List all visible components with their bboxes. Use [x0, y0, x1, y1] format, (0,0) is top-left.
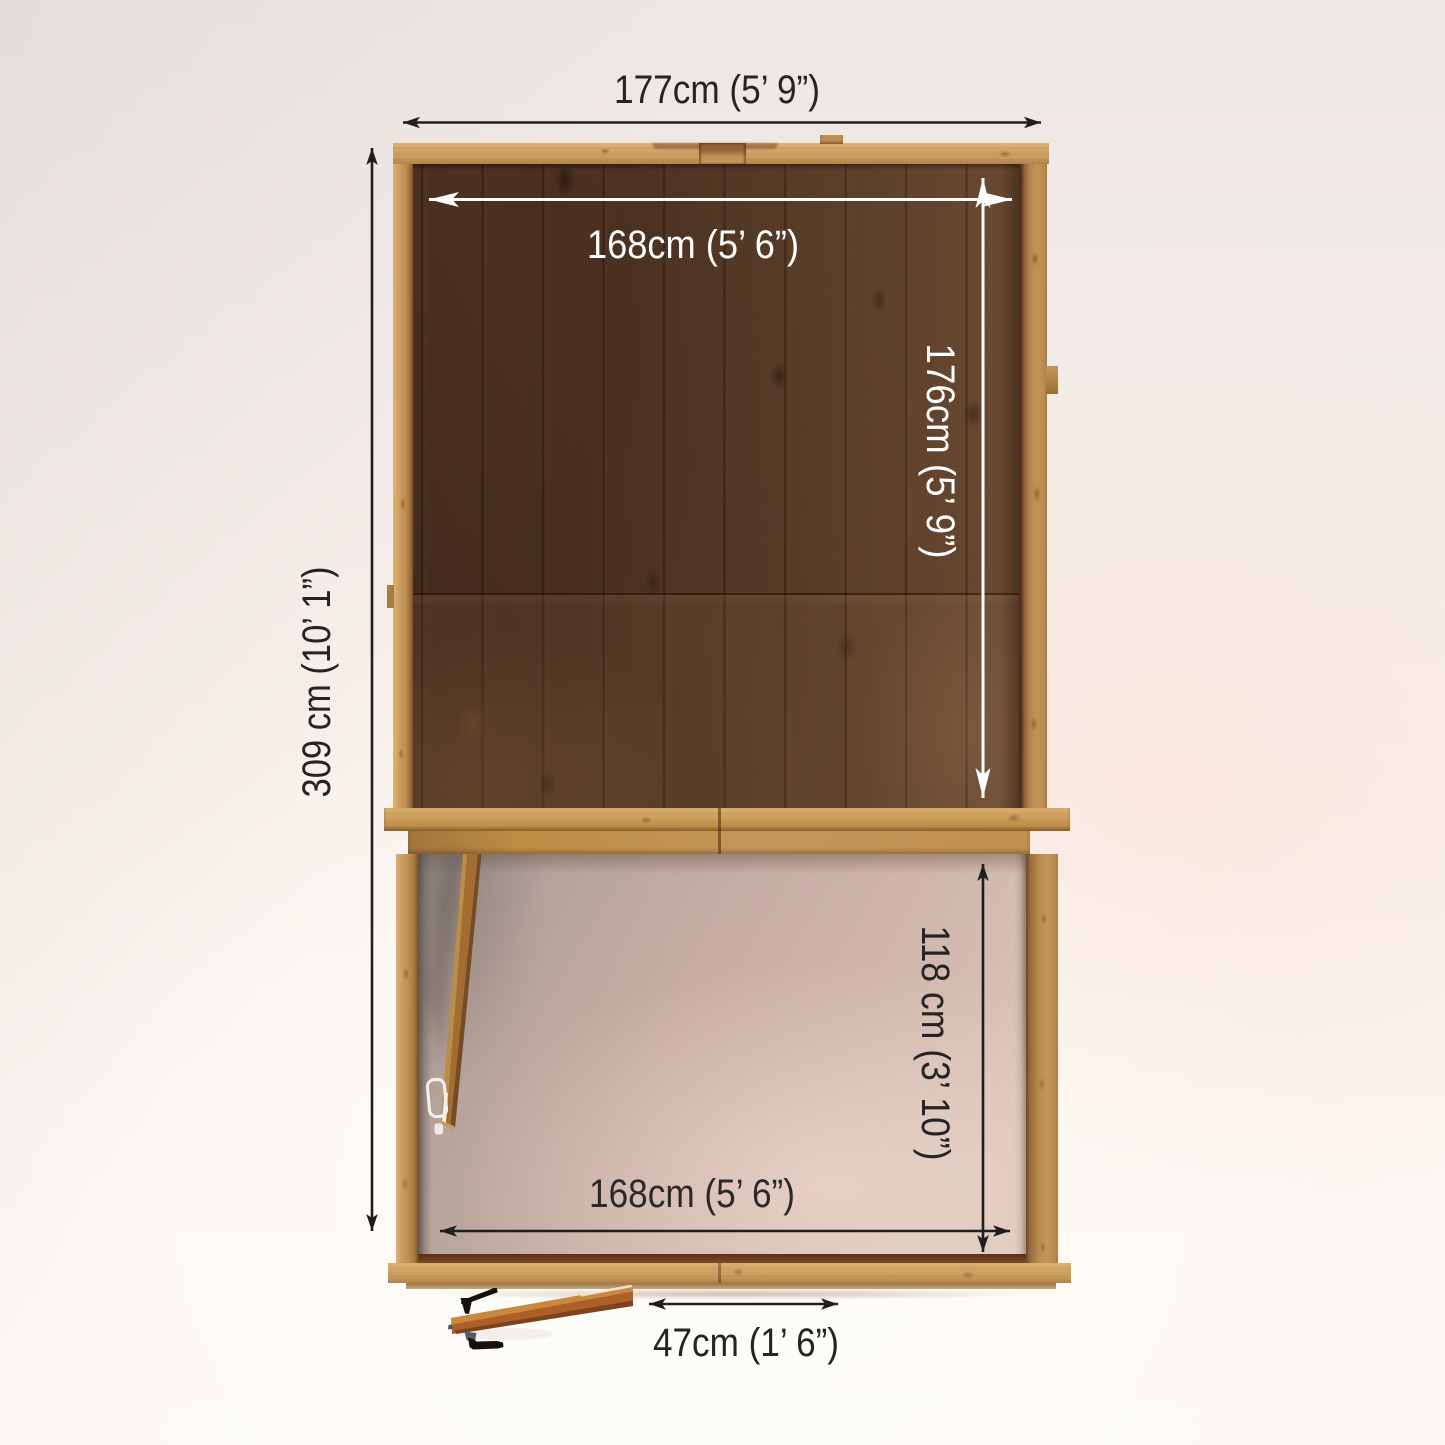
svg-text:118 cm (3’ 10”): 118 cm (3’ 10”) — [913, 926, 957, 1161]
svg-text:176cm (5’ 9”): 176cm (5’ 9”) — [918, 344, 962, 559]
svg-text:168cm (5’ 6”): 168cm (5’ 6”) — [587, 223, 799, 267]
svg-text:47cm (1’ 6”): 47cm (1’ 6”) — [653, 1321, 839, 1365]
svg-text:177cm (5’ 9”): 177cm (5’ 9”) — [614, 68, 820, 112]
svg-text:168cm (5’ 6”): 168cm (5’ 6”) — [589, 1172, 795, 1216]
svg-text:309 cm (10’ 1”): 309 cm (10’ 1”) — [295, 567, 339, 798]
